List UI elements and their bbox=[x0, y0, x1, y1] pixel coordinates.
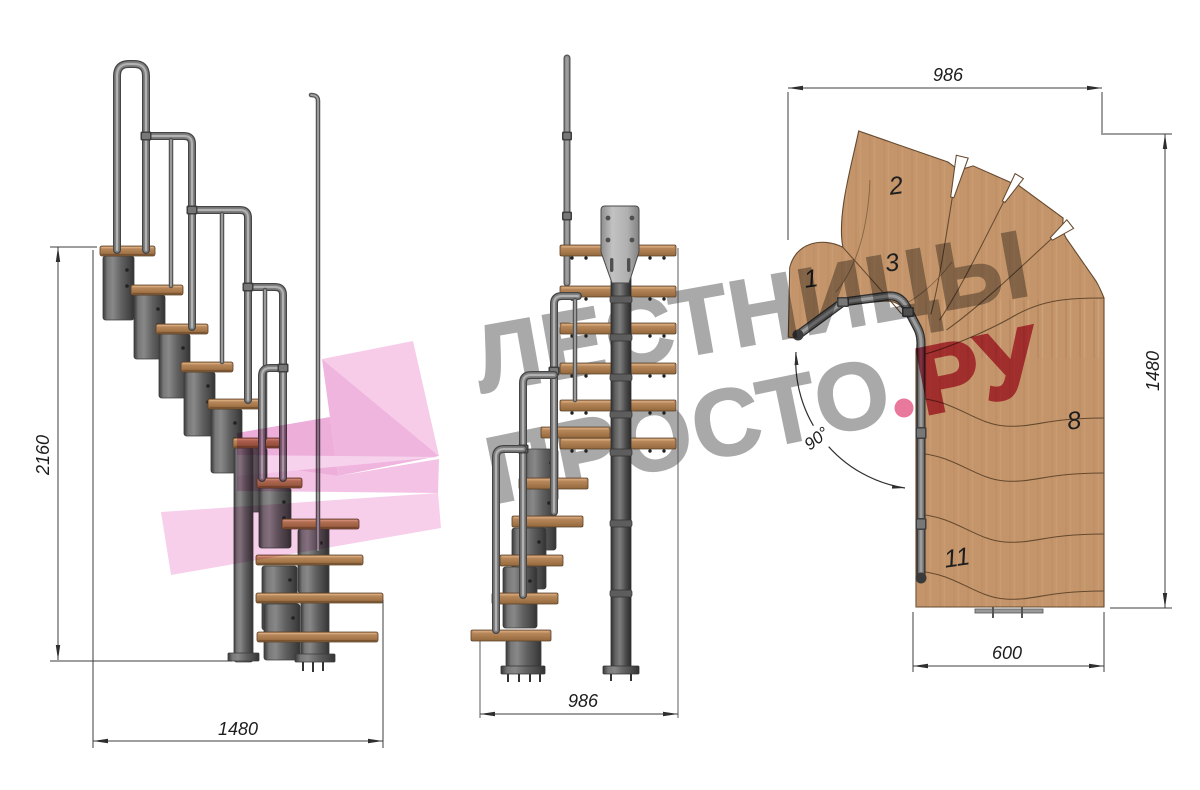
svg-text:1480: 1480 bbox=[1143, 351, 1163, 391]
svg-text:11: 11 bbox=[942, 542, 972, 573]
svg-text:986: 986 bbox=[933, 65, 964, 85]
svg-text:986: 986 bbox=[568, 691, 599, 711]
svg-text:600: 600 bbox=[992, 643, 1022, 663]
svg-text:2160: 2160 bbox=[33, 435, 53, 476]
svg-text:1480: 1480 bbox=[218, 719, 258, 739]
